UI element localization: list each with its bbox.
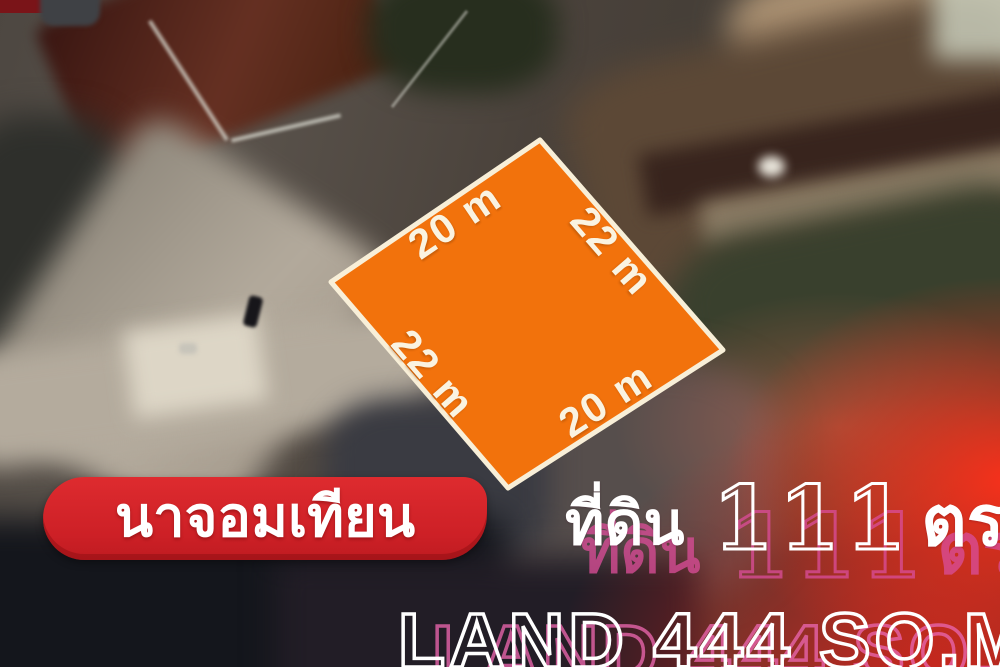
- land-area-english-text: LAND 444 SQ.M: [398, 603, 1000, 667]
- plot-polygon: [331, 140, 723, 488]
- land-promo-image: 20 m 22 m 22 m 20 m LAND 444 SQ.M LAND 4…: [0, 0, 1000, 667]
- land-area-thai-text: ที่ดิน 111 ตรว: [565, 482, 1000, 554]
- thai-area-number: 111: [713, 482, 912, 554]
- land-area-thai: ที่ดิน 111 ตรว ที่ดิน 111 ตรว: [565, 482, 1000, 554]
- thai-area-unit: ตรว: [921, 488, 1000, 555]
- location-banner: นาจอมเทียน: [43, 477, 487, 560]
- land-area-english: LAND 444 SQ.M LAND 444 SQ.M: [398, 603, 1000, 667]
- thai-land-word: ที่ดิน: [565, 494, 685, 554]
- location-banner-label: นาจอมเทียน: [115, 489, 415, 549]
